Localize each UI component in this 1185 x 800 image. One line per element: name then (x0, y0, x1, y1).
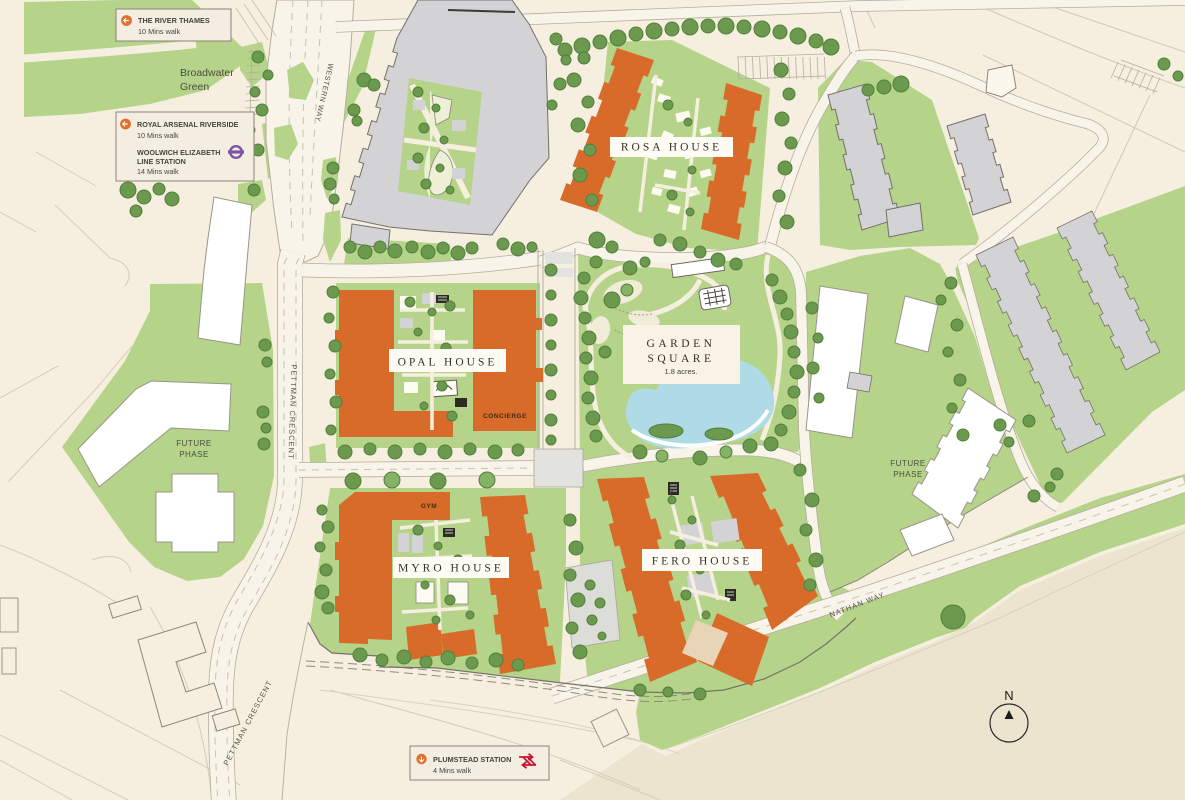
svg-text:WOOLWICH ELIZABETH: WOOLWICH ELIZABETH (137, 148, 220, 157)
svg-text:FERO HOUSE: FERO HOUSE (652, 556, 753, 568)
svg-text:CONCIERGE: CONCIERGE (483, 413, 527, 420)
svg-text:FUTURE: FUTURE (176, 439, 211, 448)
svg-text:GARDEN: GARDEN (647, 338, 716, 350)
svg-text:THE RIVER THAMES: THE RIVER THAMES (138, 16, 210, 25)
svg-text:PHASE: PHASE (893, 470, 923, 479)
svg-text:4 Mins walk: 4 Mins walk (433, 766, 471, 775)
svg-text:Broadwater: Broadwater (180, 67, 234, 79)
svg-text:14 Mins walk: 14 Mins walk (137, 167, 179, 176)
svg-text:1.8 acres.: 1.8 acres. (665, 367, 698, 376)
svg-text:ROYAL ARSENAL RIVERSIDE: ROYAL ARSENAL RIVERSIDE (137, 120, 239, 129)
svg-text:N: N (1004, 688, 1013, 703)
svg-text:GYM: GYM (421, 503, 437, 510)
svg-text:LINE STATION: LINE STATION (137, 157, 186, 166)
svg-text:10 Mins walk: 10 Mins walk (138, 27, 181, 36)
svg-text:SQUARE: SQUARE (647, 353, 714, 365)
svg-text:ROSA HOUSE: ROSA HOUSE (621, 142, 722, 154)
svg-text:FUTURE: FUTURE (890, 459, 925, 468)
svg-text:MYRO HOUSE: MYRO HOUSE (398, 563, 504, 575)
svg-text:PHASE: PHASE (179, 450, 209, 459)
svg-text:PLUMSTEAD STATION: PLUMSTEAD STATION (433, 755, 511, 764)
svg-text:Green: Green (180, 81, 209, 93)
svg-text:OPAL HOUSE: OPAL HOUSE (398, 357, 498, 369)
svg-text:10 Mins walk: 10 Mins walk (137, 131, 179, 140)
